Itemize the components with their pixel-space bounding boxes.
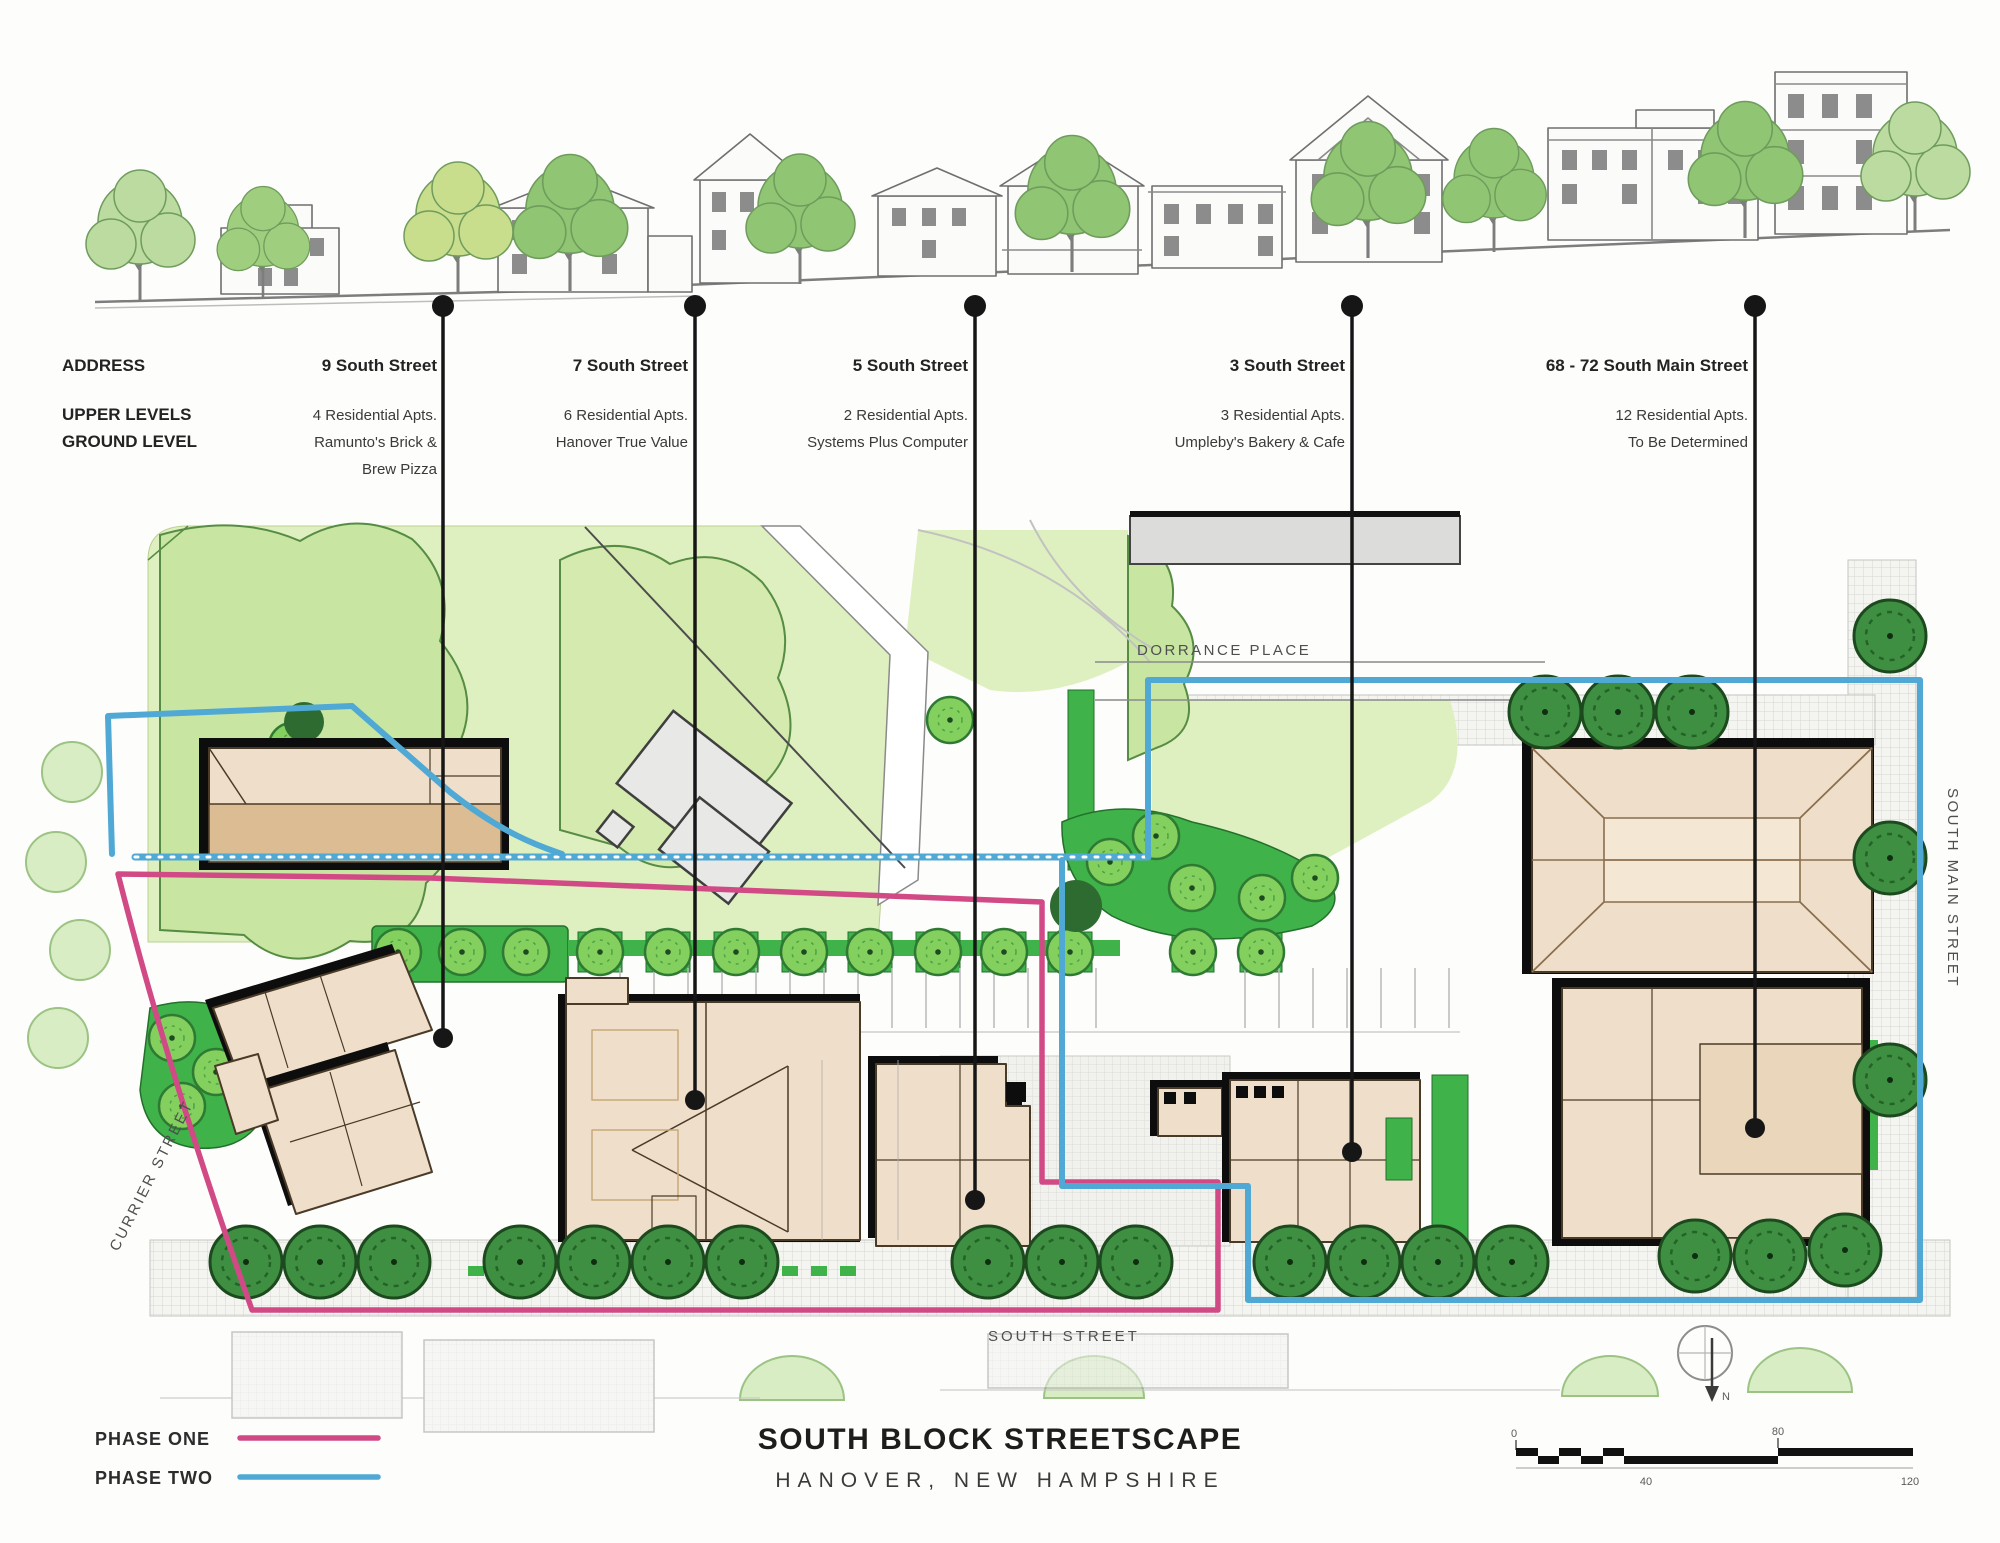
- south-street-label: SOUTH STREET: [988, 1328, 1140, 1345]
- building-68-72-lower: [1552, 978, 1870, 1254]
- scale-80: 80: [1772, 1426, 1784, 1438]
- legend-phase-two: PHASE TWO: [95, 1468, 378, 1488]
- north-label: N: [1722, 1391, 1730, 1403]
- address-7-south: 7 South Street: [573, 356, 689, 375]
- address-5-south: 5 South Street: [853, 356, 969, 375]
- south-block-streetscape-plan: ADDRESS UPPER LEVELS GROUND LEVEL 9 Sout…: [0, 0, 2000, 1543]
- title-line-2: HANOVER, NEW HAMPSHIRE: [775, 1469, 1224, 1492]
- site-plan-svg: ADDRESS UPPER LEVELS GROUND LEVEL 9 Sout…: [0, 0, 2000, 1543]
- address-column-68-72: 68 - 72 South Main Street 12 Residential…: [1546, 356, 1748, 451]
- existing-building-north: [1130, 516, 1460, 564]
- phase-two-label: PHASE TWO: [95, 1468, 213, 1488]
- map-title: SOUTH BLOCK STREETSCAPE HANOVER, NEW HAM…: [758, 1423, 1243, 1492]
- svg-text:4 Residential Apts.: 4 Residential Apts.: [313, 407, 437, 424]
- svg-text:Ramunto's Brick &: Ramunto's Brick &: [314, 434, 437, 451]
- legend-phase-one: PHASE ONE: [95, 1429, 378, 1449]
- elevation-building-3-south-a: [872, 168, 1002, 276]
- svg-text:Systems Plus Computer: Systems Plus Computer: [807, 434, 968, 451]
- svg-text:12 Residential Apts.: 12 Residential Apts.: [1615, 407, 1748, 424]
- address-table: ADDRESS UPPER LEVELS GROUND LEVEL 9 Sout…: [62, 356, 1748, 478]
- ground-level-label: GROUND LEVEL: [62, 432, 197, 451]
- dark-shrub: [1050, 880, 1102, 932]
- street-elevation: [86, 72, 1970, 308]
- address-column-9-south: 9 South Street 4 Residential Apts. Ramun…: [313, 356, 438, 478]
- svg-text:Umpleby's Bakery & Cafe: Umpleby's Bakery & Cafe: [1175, 434, 1345, 451]
- scale-0: 0: [1511, 1428, 1517, 1440]
- address-row-label: ADDRESS: [62, 356, 145, 375]
- address-column-3-south: 3 South Street 3 Residential Apts. Umple…: [1175, 356, 1346, 451]
- title-line-1: SOUTH BLOCK STREETSCAPE: [758, 1423, 1243, 1456]
- svg-text:3 Residential Apts.: 3 Residential Apts.: [1221, 407, 1345, 424]
- address-column-7-south: 7 South Street 6 Residential Apts. Hanov…: [556, 356, 689, 451]
- address-9-south: 9 South Street: [322, 356, 438, 375]
- scale-120: 120: [1901, 1476, 1919, 1488]
- scale-bar: 0 40 80 120: [1511, 1426, 1919, 1488]
- legend: PHASE ONE PHASE TWO: [95, 1429, 378, 1488]
- site-plan: [26, 295, 1950, 1432]
- address-column-5-south: 5 South Street 2 Residential Apts. Syste…: [807, 356, 968, 451]
- building-68-72-upper: [1522, 738, 1874, 974]
- south-main-street-label: SOUTH MAIN STREET: [1944, 788, 1961, 988]
- elevation-building-main-a: [1148, 186, 1286, 268]
- upper-levels-label: UPPER LEVELS: [62, 405, 191, 424]
- svg-text:To Be Determined: To Be Determined: [1628, 434, 1748, 451]
- svg-text:Hanover True Value: Hanover True Value: [556, 434, 688, 451]
- svg-text:6 Residential Apts.: 6 Residential Apts.: [564, 407, 688, 424]
- svg-text:2 Residential Apts.: 2 Residential Apts.: [844, 407, 968, 424]
- building-9-south-street: [205, 944, 432, 1214]
- north-arrow: N: [1678, 1326, 1732, 1403]
- address-68-72: 68 - 72 South Main Street: [1546, 356, 1748, 375]
- svg-text:Brew Pizza: Brew Pizza: [362, 461, 438, 478]
- address-3-south: 3 South Street: [1230, 356, 1346, 375]
- scale-40: 40: [1640, 1476, 1652, 1488]
- building-7-south-street: [558, 978, 860, 1242]
- phase-one-label: PHASE ONE: [95, 1429, 210, 1449]
- building-5-south-street: [868, 1056, 1030, 1246]
- dorrance-place-label: DORRANCE PLACE: [1137, 642, 1311, 659]
